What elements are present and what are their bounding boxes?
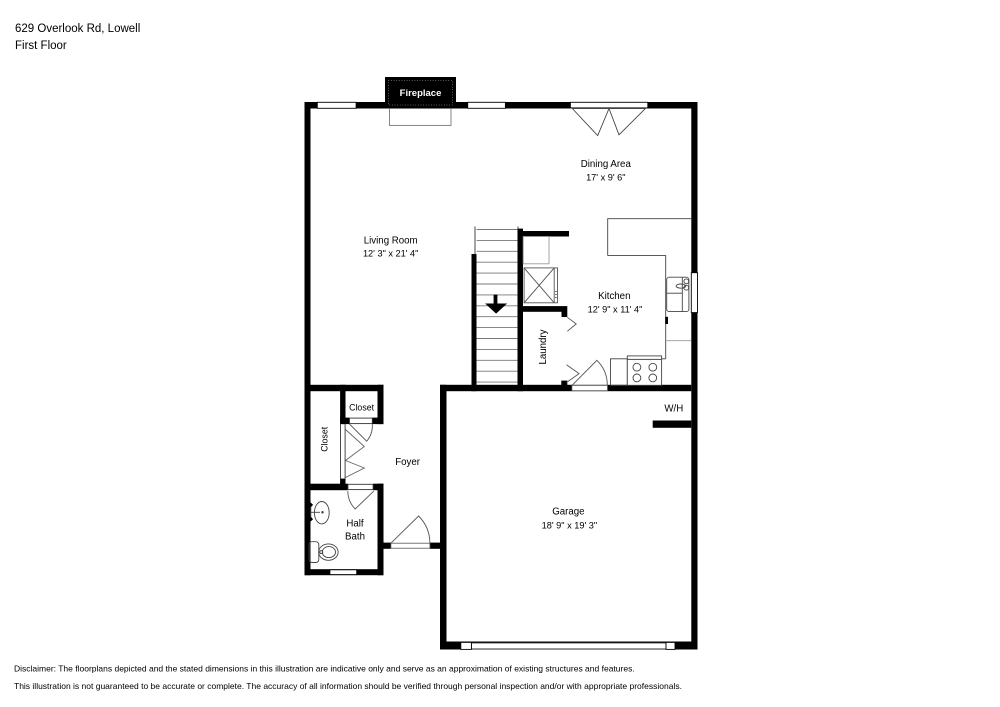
svg-text:Kitchen: Kitchen (598, 291, 630, 302)
svg-text:W/H: W/H (664, 403, 683, 414)
svg-text:Dining Area: Dining Area (581, 159, 632, 170)
svg-text:Living Room: Living Room (364, 236, 418, 247)
svg-text:Fireplace: Fireplace (400, 88, 442, 99)
svg-text:First Floor: First Floor (15, 40, 67, 52)
svg-text:Closet: Closet (349, 403, 374, 413)
svg-text:12' 9" x 11' 4": 12' 9" x 11' 4" (588, 304, 643, 314)
svg-text:Disclaimer: The floorplans dep: Disclaimer: The floorplans depicted and … (14, 663, 635, 673)
svg-text:17' x 9' 6": 17' x 9' 6" (586, 173, 625, 183)
svg-text:18' 9" x 19' 3": 18' 9" x 19' 3" (542, 520, 598, 530)
svg-text:Foyer: Foyer (395, 457, 421, 468)
svg-text:Closet: Closet (320, 426, 330, 451)
svg-text:Garage: Garage (552, 506, 584, 517)
svg-text:629 Overlook Rd, Lowell: 629 Overlook Rd, Lowell (15, 23, 140, 35)
svg-text:Bath: Bath (345, 531, 365, 542)
svg-text:12' 3" x 21' 4": 12' 3" x 21' 4" (363, 248, 419, 258)
svg-text:This illustration is not guara: This illustration is not guaranteed to b… (14, 681, 682, 691)
svg-text:Half: Half (346, 518, 364, 529)
svg-text:Laundry: Laundry (538, 329, 549, 364)
